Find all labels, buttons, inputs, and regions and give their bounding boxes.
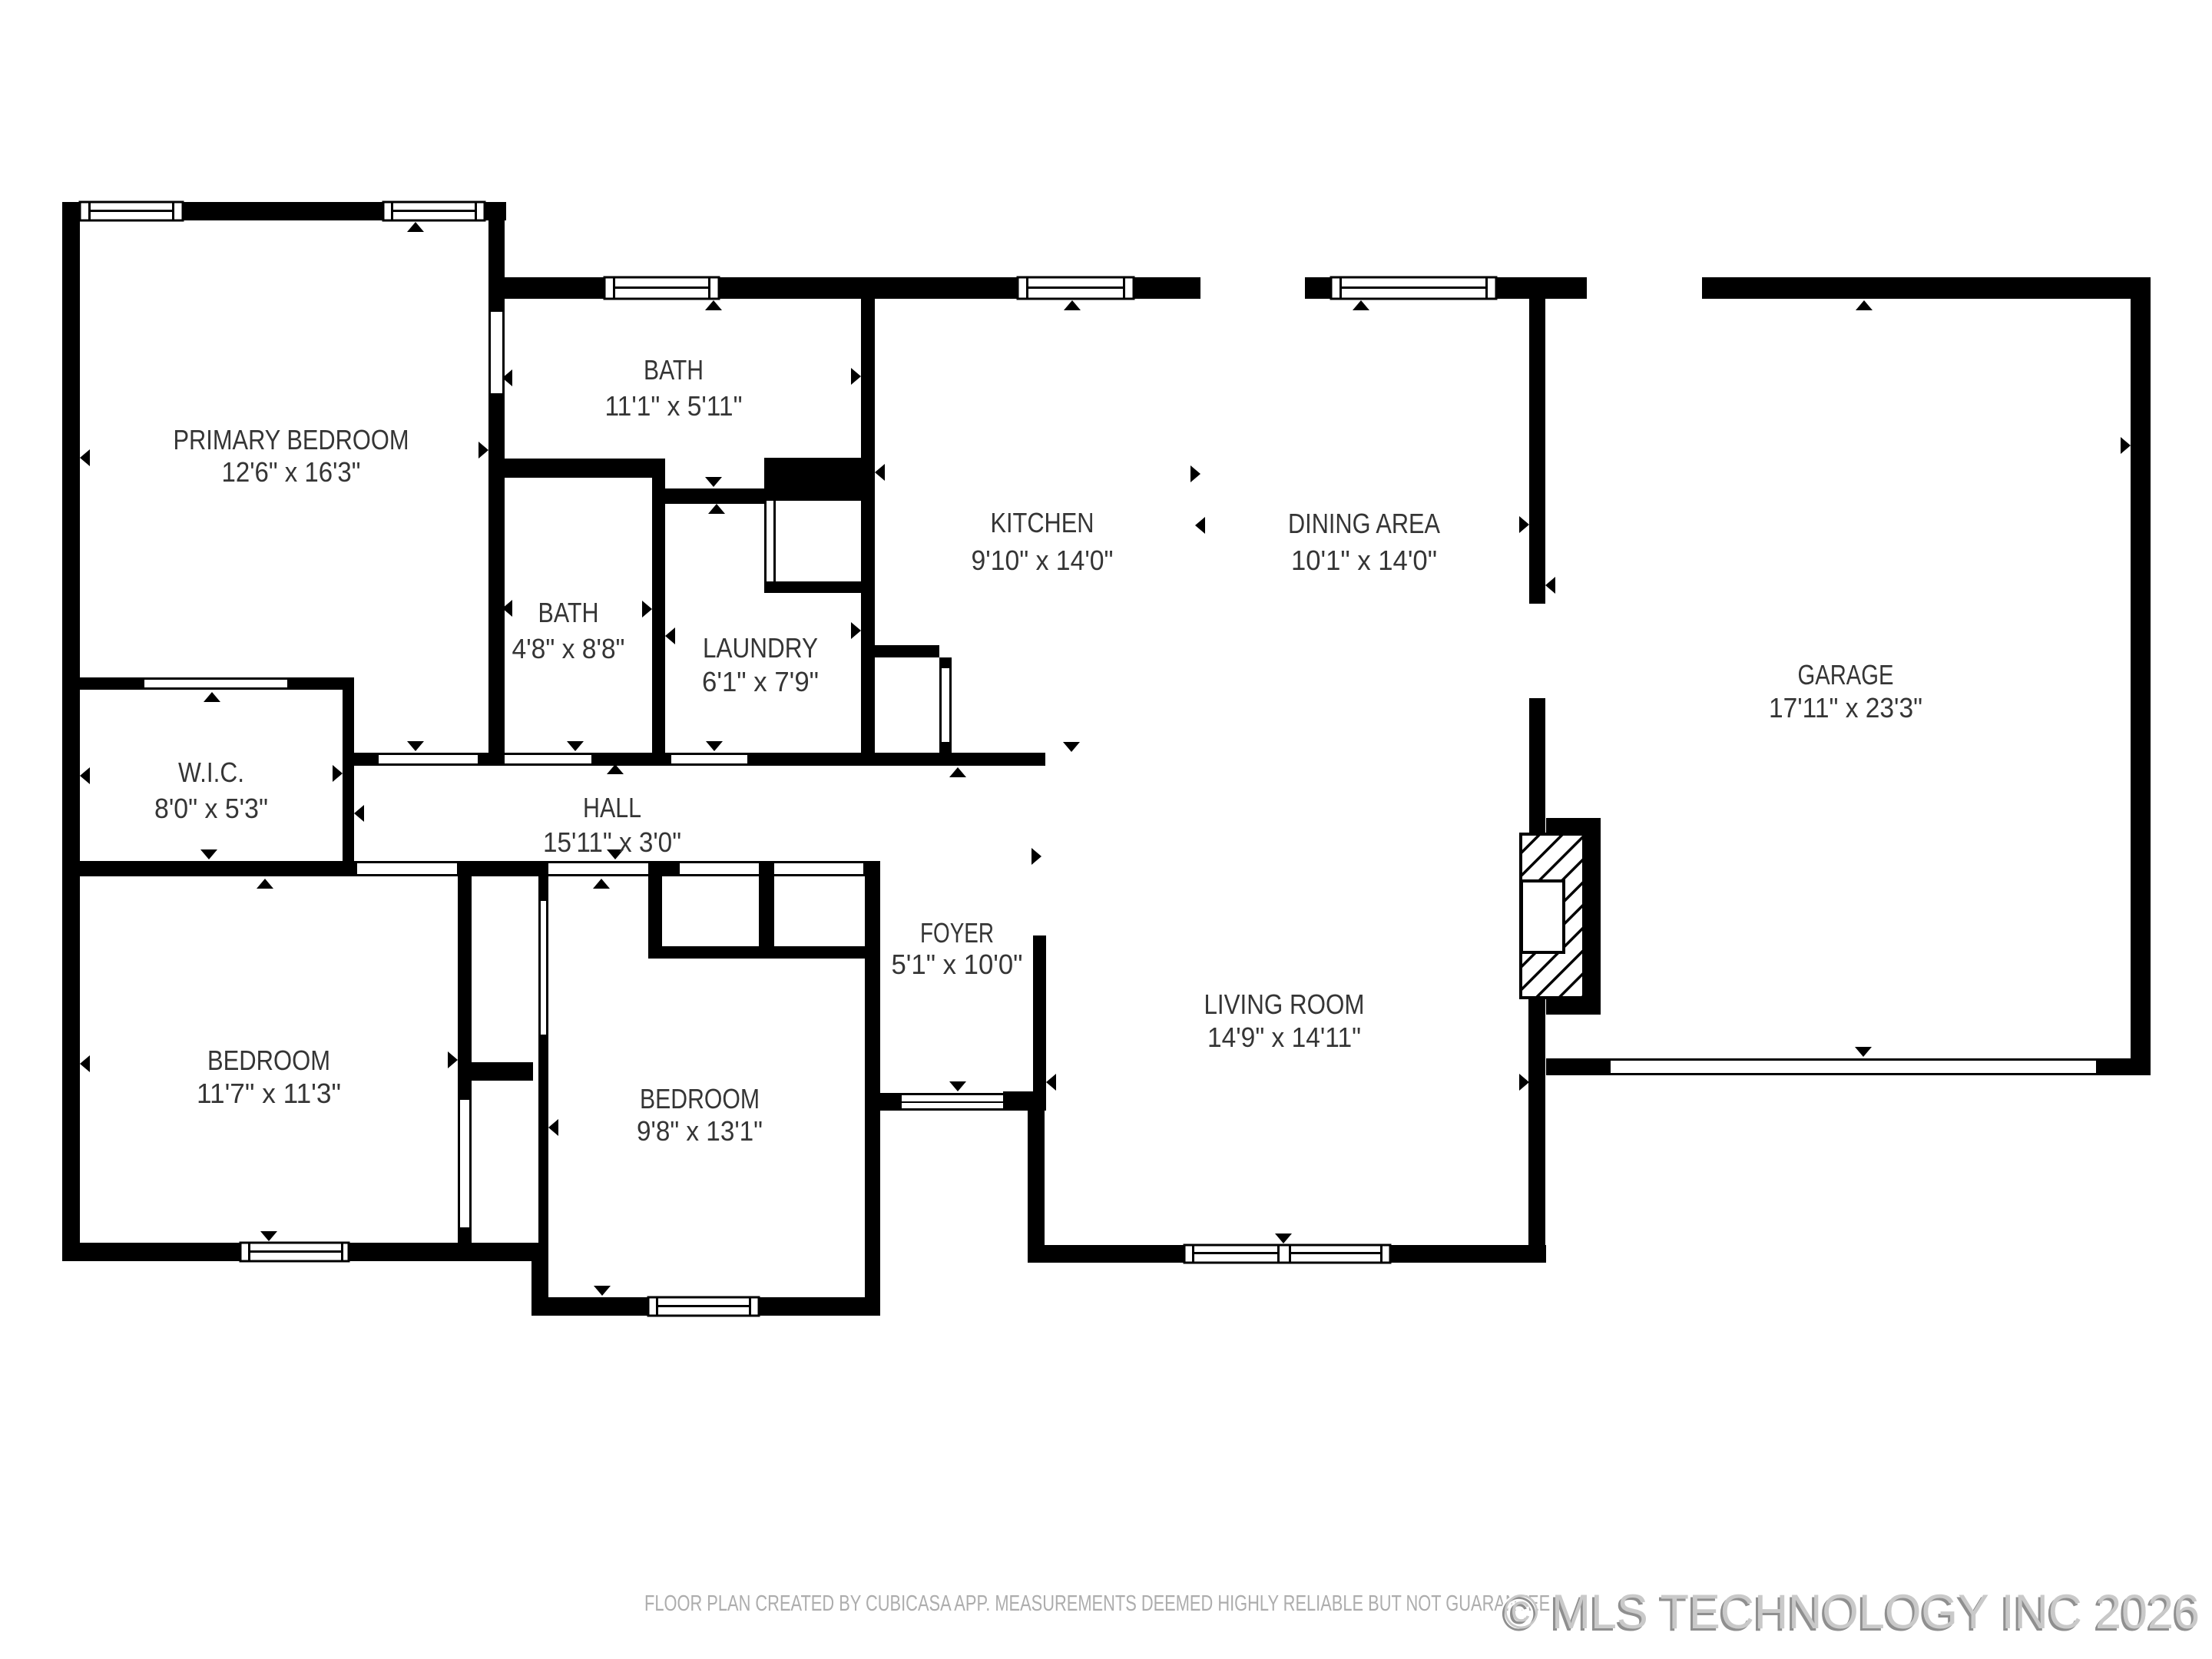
svg-text:11'1" x 5'11": 11'1" x 5'11" [605, 390, 743, 422]
svg-text:5'1" x 10'0": 5'1" x 10'0" [892, 949, 1023, 980]
svg-text:11'7" x 11'3": 11'7" x 11'3" [197, 1078, 341, 1109]
svg-text:BATH: BATH [538, 597, 599, 628]
svg-text:HALL: HALL [583, 792, 641, 823]
svg-text:6'1" x 7'9": 6'1" x 7'9" [702, 666, 819, 697]
svg-text:12'6" x 16'3": 12'6" x 16'3" [222, 456, 361, 488]
svg-text:© MLS TECHNOLOGY INC 2026: © MLS TECHNOLOGY INC 2026 [1504, 1585, 2200, 1639]
svg-text:BEDROOM: BEDROOM [640, 1083, 760, 1114]
svg-text:FLOOR PLAN CREATED BY CUBICASA: FLOOR PLAN CREATED BY CUBICASA APP. MEAS… [644, 1591, 1567, 1616]
svg-text:LIVING ROOM: LIVING ROOM [1204, 988, 1365, 1020]
svg-text:LAUNDRY: LAUNDRY [703, 632, 818, 664]
svg-text:PRIMARY BEDROOM: PRIMARY BEDROOM [174, 424, 409, 455]
svg-text:W.I.C.: W.I.C. [178, 757, 244, 788]
svg-text:GARAGE: GARAGE [1798, 659, 1894, 690]
svg-text:BATH: BATH [644, 354, 704, 386]
svg-text:9'8" x 13'1": 9'8" x 13'1" [637, 1115, 763, 1147]
svg-text:FOYER: FOYER [920, 917, 994, 949]
svg-text:8'0" x 5'3": 8'0" x 5'3" [154, 793, 268, 824]
svg-text:BEDROOM: BEDROOM [207, 1045, 330, 1076]
svg-text:DINING AREA: DINING AREA [1288, 508, 1440, 539]
svg-text:17'11" x 23'3": 17'11" x 23'3" [1769, 692, 1922, 724]
svg-text:10'1" x 14'0": 10'1" x 14'0" [1291, 545, 1437, 576]
svg-text:9'10" x 14'0": 9'10" x 14'0" [972, 545, 1114, 576]
svg-text:14'9" x 14'11": 14'9" x 14'11" [1207, 1022, 1361, 1053]
svg-text:15'11" x 3'0": 15'11" x 3'0" [543, 826, 681, 858]
svg-text:KITCHEN: KITCHEN [991, 507, 1094, 538]
svg-text:4'8" x 8'8": 4'8" x 8'8" [512, 633, 625, 664]
